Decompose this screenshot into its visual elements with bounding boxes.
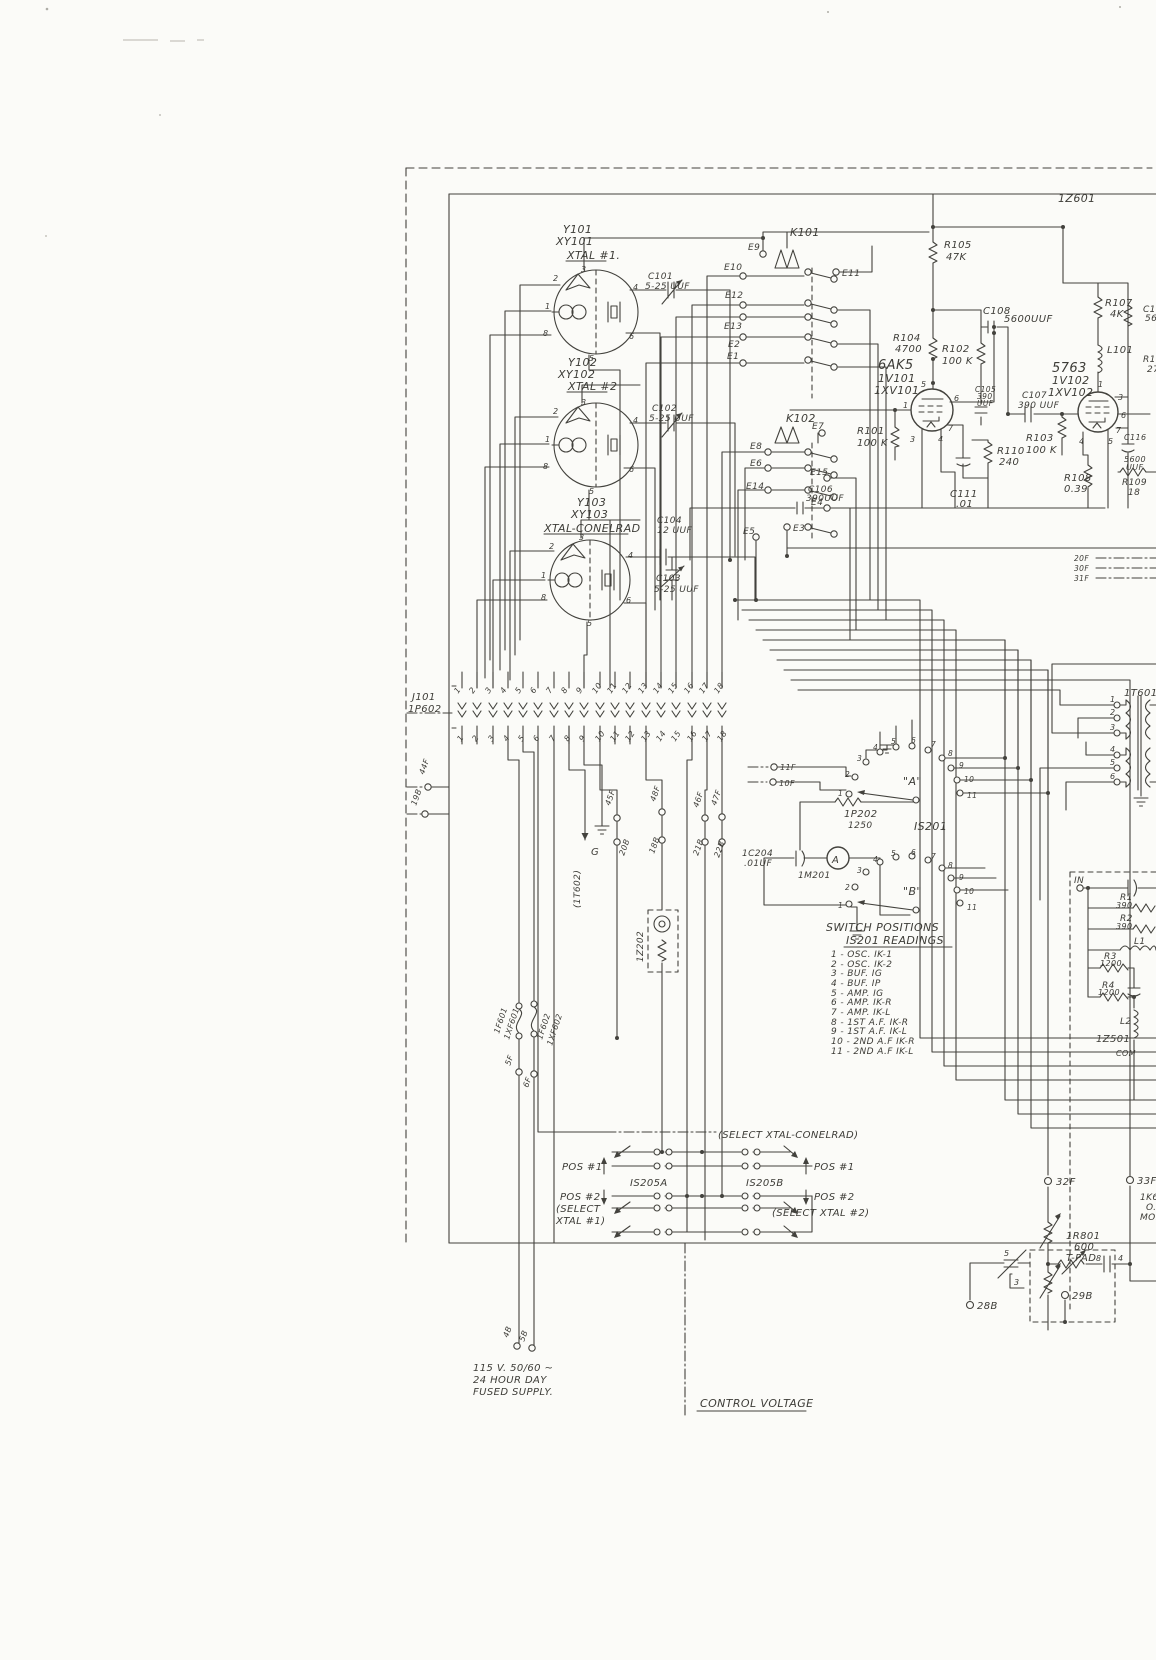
- label-c109-val: 560: [1145, 314, 1156, 324]
- readings-list-9: 9 - 1ST A.F. IK-L: [831, 1027, 907, 1037]
- tube-6ak5-pins-3: 6: [954, 394, 960, 403]
- label-e1: E1: [727, 352, 739, 362]
- label-5f: 5F: [503, 1054, 515, 1067]
- label-j101: J101: [410, 692, 436, 703]
- connector-pin-numbers-bottom-8: 8: [562, 733, 573, 743]
- crystal-y101-pins-7: 5: [589, 354, 595, 363]
- crystal-y102-pins-2: 3: [581, 398, 587, 407]
- label-c103-val: 5-25 UUF: [654, 585, 699, 595]
- crystal-y103-pins-4: 1: [541, 571, 547, 580]
- label-e14: E14: [746, 482, 764, 492]
- label-c104-ref: C104: [657, 516, 682, 526]
- crystal-y103-pins-3: 4: [628, 551, 634, 560]
- label-30f: 30F: [1074, 564, 1089, 573]
- label-pos1-l: POS #1: [562, 1162, 603, 1173]
- connector-pin-numbers-top-4: 4: [498, 685, 509, 695]
- connector-pin-numbers-bottom-14: 14: [654, 729, 668, 743]
- label-power-line1: 115 V. 50/60 ~: [473, 1363, 553, 1374]
- connector-pin-numbers-top-10: 10: [590, 681, 604, 695]
- connector-pin-numbers-bottom-16: 16: [685, 729, 699, 743]
- readings-list: 1 - OSC. IK-12 - OSC. IK-23 - BUF. IG4 -…: [831, 950, 915, 1057]
- label-1r801-val: 600: [1074, 1242, 1094, 1253]
- label-c101-val: 5-25 UUF: [645, 282, 690, 292]
- label-r103-ref: R103: [1026, 433, 1054, 444]
- tpad-pin-numbers-1: 5: [1004, 1249, 1010, 1258]
- readings-list-7: 7 - AMP. IK-L: [831, 1008, 891, 1018]
- crystal-y103-pins-6: 6: [626, 596, 632, 605]
- label-e7: E7: [812, 422, 824, 432]
- readings-list-10: 10 - 2ND A.F IK-R: [831, 1037, 915, 1047]
- label-e13: E13: [724, 322, 742, 332]
- label-r103-val: 100 K: [1026, 445, 1058, 456]
- tube-6ak5-pins-1: 5: [921, 380, 927, 389]
- label-mod-2: O.L.: [1146, 1203, 1156, 1213]
- switch-is201-a-symbol: [846, 743, 963, 803]
- tpad-pin-numbers-2: 3: [1014, 1278, 1020, 1287]
- crystal-y101-pins-1: 2: [553, 274, 559, 283]
- switch-is201-b-symbol: [846, 853, 963, 913]
- label-10f: 10F: [779, 779, 795, 788]
- crystal-y102-pins-1: 2: [553, 407, 559, 416]
- label-e3: E3: [793, 524, 805, 534]
- connector-pin-numbers-top-2: 2: [467, 685, 478, 695]
- label-pos2-l: POS #2: [560, 1192, 601, 1203]
- label-power-line2: 24 HOUR DAY: [473, 1375, 547, 1386]
- connector-pin-numbers-top-1: 1: [452, 685, 463, 695]
- label-1z601: 1Z601: [1058, 192, 1096, 205]
- label-1r801-ref: 1R801: [1066, 1231, 1100, 1242]
- connector-pin-numbers-bottom-2: 2: [470, 733, 481, 743]
- label-c104-val: 12 UUF: [657, 526, 692, 536]
- crystal-y102-pins: 2341865: [543, 398, 639, 496]
- connector-pin-numbers-bottom-11: 11: [608, 729, 622, 743]
- connector-pin-numbers-top-18: 18: [712, 681, 726, 695]
- crystal-y103-symbol: [548, 540, 630, 620]
- tube-6ak5-pins-5: 3: [910, 435, 916, 444]
- label-meter-glyph: A: [831, 855, 839, 866]
- label-11f: 11F: [780, 763, 796, 772]
- label-sel2: (SELECT XTAL #2): [772, 1208, 869, 1219]
- label-y103-name: XTAL-CONELRAD: [543, 522, 641, 535]
- label-1p202-ref: 1P202: [844, 809, 877, 820]
- label-c103-ref: C103: [656, 574, 681, 584]
- label-sel1a: (SELECT: [556, 1204, 601, 1215]
- tpad-pin-numbers-3: 8: [1096, 1254, 1102, 1263]
- connector-pin-numbers-top-12: 12: [620, 681, 634, 695]
- label-c105-v2: UUF: [977, 399, 994, 408]
- t601-pin-numbers-1: 1: [1110, 695, 1116, 704]
- label-e11: E11: [842, 269, 860, 279]
- label-in: IN: [1074, 876, 1084, 886]
- switch-b-position-numbers-8: 8: [948, 861, 953, 870]
- schematic-scan-page: Y101 XY101 XTAL #1. Y102 XY102 XTAL #2 Y…: [0, 0, 1156, 1660]
- connector-pin-numbers-top-5: 5: [513, 685, 524, 695]
- label-r109-val: 18: [1128, 488, 1140, 498]
- label-pos1-r: POS #1: [814, 1162, 855, 1173]
- label-c116-ref: C116: [1124, 433, 1146, 442]
- tube-5763-pins-1: 1: [1098, 380, 1104, 389]
- crystal-y101-pins-5: 8: [543, 329, 549, 338]
- crystal-y101-symbol: [552, 270, 638, 354]
- label-c101-ref: C101: [648, 272, 673, 282]
- label-mod-3: MOD: [1140, 1213, 1156, 1223]
- label-r4v: 1200: [1098, 988, 1120, 997]
- connector-pin-numbers-bottom-12: 12: [623, 729, 637, 743]
- label-v102-socket: 1XV102: [1048, 386, 1093, 399]
- label-r108-ref: R108: [1064, 473, 1092, 484]
- crystal-y102-symbol: [552, 403, 638, 487]
- tube-5763-pins-6: 4: [1079, 437, 1085, 446]
- switch-b-position-numbers-6: 6: [911, 848, 916, 857]
- tube-6ak5-pins-6: 4: [938, 435, 944, 444]
- resistor-1p202-zigzag: [835, 798, 861, 806]
- switch-a-position-numbers-8: 8: [948, 749, 953, 758]
- t601-pin-numbers-6: 6: [1110, 772, 1116, 781]
- label-c102-val: 5-25 UUF: [649, 414, 694, 424]
- label-48f: 48F: [648, 785, 662, 803]
- label-r3v: 1200: [1100, 959, 1122, 968]
- switch-a-position-numbers-9: 9: [959, 761, 964, 770]
- connector-pin-numbers-bottom-4: 4: [501, 733, 512, 743]
- connector-pin-numbers-bottom-10: 10: [593, 729, 607, 743]
- crystal-y101-pins-2: 3: [581, 265, 587, 274]
- label-31f: 31F: [1074, 574, 1089, 583]
- switch-a-position-numbers-10: 10: [964, 775, 974, 784]
- connector-pin-numbers-bottom-15: 15: [669, 729, 683, 743]
- label-c102-ref: C102: [652, 404, 677, 414]
- label-g: G: [591, 847, 599, 858]
- label-1c204-ref: 1C204: [742, 849, 773, 859]
- label-e10: E10: [724, 263, 742, 273]
- label-e8: E8: [750, 442, 762, 452]
- connector-pin-numbers-top-14: 14: [651, 681, 665, 695]
- label-l1-audio: L1: [1134, 937, 1146, 947]
- label-1c204-val: .01UF: [744, 859, 773, 869]
- readings-list-11: 11 - 2ND A.F IK-L: [831, 1047, 914, 1057]
- connector-pin-numbers-top-15: 15: [666, 681, 680, 695]
- label-c108-val: 5600UUF: [1004, 314, 1053, 325]
- label-e15: E15: [810, 468, 828, 478]
- crystal-y101-pins-6: 6: [629, 332, 635, 341]
- label-v101-socket: 1XV101: [874, 384, 919, 397]
- switch-b-position-numbers-1: 1: [838, 901, 843, 910]
- crystal-y102-pins-6: 6: [629, 465, 635, 474]
- label-c107-val: 390 UUF: [1018, 401, 1060, 411]
- label-r110-ref: R110: [997, 446, 1025, 457]
- relay-k101-symbol: [740, 250, 839, 370]
- label-46f: 46F: [691, 791, 705, 809]
- label-4b: 4B: [501, 1325, 513, 1339]
- readings-list-3: 3 - BUF. IG: [831, 969, 882, 979]
- crystal-y102-pins-5: 8: [543, 462, 549, 471]
- connector-pin-numbers-top-13: 13: [636, 681, 650, 695]
- crystal-y103-pins-2: 3: [579, 533, 585, 542]
- label-select-conelrad: (SELECT XTAL-CONELRAD): [718, 1130, 858, 1141]
- t601-pin-numbers-3: 3: [1110, 723, 1116, 732]
- label-com: COM: [1116, 1049, 1136, 1058]
- label-r107-val: 4K: [1110, 309, 1125, 320]
- connector-pin-numbers-bottom-1: 1: [455, 733, 466, 743]
- label-r104-val: 4700: [895, 344, 922, 355]
- label-r107-ref: R107: [1105, 298, 1133, 309]
- switch-b-position-numbers-4: 4: [873, 855, 878, 864]
- label-k101: K101: [790, 226, 820, 239]
- connector-pin-numbers-bottom-6: 6: [531, 733, 542, 743]
- tube-6ak5-pins-2: 1: [903, 401, 909, 410]
- label-1r801-name: T-PAD: [1066, 1253, 1096, 1264]
- label-r2v: 390: [1116, 922, 1132, 931]
- t601-pin-numbers-2: 2: [1110, 708, 1116, 717]
- label-is205b: IS205B: [746, 1178, 784, 1189]
- label-is201: IS201: [914, 820, 947, 833]
- t601-pin-numbers-5: 5: [1110, 758, 1116, 767]
- label-1t602: (1T602): [573, 870, 583, 908]
- readings-list-1: 1 - OSC. IK-1: [831, 950, 892, 960]
- label-e9: E9: [748, 243, 760, 253]
- connector-pin-numbers-bottom-18: 18: [715, 729, 729, 743]
- label-y103-ref2: XY103: [570, 508, 608, 521]
- label-19b: 19B: [409, 788, 423, 807]
- connector-pin-numbers-bottom: 123456789101112131415161718: [455, 729, 729, 744]
- label-28b: 28B: [977, 1301, 998, 1312]
- crystal-y103-pins-5: 8: [541, 593, 547, 602]
- label-e6: E6: [750, 459, 762, 469]
- connector-pin-numbers-bottom-9: 9: [577, 733, 588, 743]
- label-22b: 22B: [712, 840, 726, 859]
- label-r101-val: 100 K: [857, 438, 889, 449]
- label-18b: 18B: [647, 836, 661, 855]
- label-y101-name: XTAL #1.: [566, 249, 620, 262]
- label-c111-val: .01: [956, 499, 973, 510]
- crystal-y101-pins-3: 4: [633, 283, 639, 292]
- tube-5763-pins-2: 3: [1118, 393, 1124, 402]
- fuse-symbols: [516, 1001, 537, 1039]
- schematic-canvas: Y101 XY101 XTAL #1. Y102 XY102 XTAL #2 Y…: [0, 0, 1156, 1660]
- connector-pin-numbers-top-16: 16: [682, 681, 696, 695]
- switch-b-position-numbers-3: 3: [857, 866, 862, 875]
- label-e2: E2: [728, 340, 740, 350]
- tube-5763-pins-3: 6: [1121, 411, 1127, 420]
- label-29b: 29B: [1072, 1291, 1093, 1302]
- label-1p602: 1P602: [408, 704, 441, 715]
- crystal-y103-pins-1: 2: [549, 542, 555, 551]
- wire-network: [407, 194, 1156, 1415]
- connector-pin-numbers-top-17: 17: [697, 681, 711, 696]
- tube-5763-pins-5: 5: [1108, 437, 1114, 446]
- connector-pin-numbers-bottom-7: 7: [547, 733, 558, 743]
- switch-a-position-numbers-3: 3: [857, 754, 862, 763]
- crystal-y103-pins-7: 5: [587, 619, 593, 628]
- label-e5: E5: [743, 527, 755, 537]
- connector-pin-numbers-top-6: 6: [528, 685, 539, 695]
- tpad-pin-numbers-4: 4: [1118, 1254, 1124, 1263]
- connector-pin-numbers-bottom-13: 13: [639, 729, 653, 743]
- label-32f: 32F: [1056, 1177, 1076, 1188]
- switch-a-position-numbers-2: 2: [845, 770, 850, 779]
- tube-6ak5-pins-4: 7: [948, 424, 954, 433]
- lamp-resistor-zigzag: [658, 940, 666, 961]
- label-1z202: 1Z202: [636, 931, 646, 962]
- label-1z501: 1Z501: [1096, 1034, 1130, 1045]
- connector-pin-numbers-top-9: 9: [574, 685, 585, 695]
- label-pos2-r: POS #2: [814, 1192, 855, 1203]
- label-r109-ref: R109: [1122, 478, 1147, 488]
- label-control-voltage: CONTROL VOLTAGE: [700, 1397, 814, 1410]
- wire-tag-leaders: [1096, 558, 1156, 578]
- label-r102-ref: R102: [942, 344, 970, 355]
- connector-pin-numbers-bottom-17: 17: [700, 729, 714, 744]
- connector-pin-numbers-bottom-3: 3: [486, 733, 497, 743]
- switch-a-position-numbers-1: 1: [838, 789, 843, 798]
- label-1p202-val: 1250: [848, 821, 873, 831]
- label-r106-ref: R106: [1143, 355, 1156, 365]
- crystal-y101-pins-4: 1: [545, 302, 551, 311]
- label-r108-val: 0.39: [1064, 484, 1088, 495]
- readings-list-6: 6 - AMP. IK-R: [831, 998, 892, 1008]
- inductor-l101-symbol: [1098, 345, 1102, 373]
- switch-b-position-numbers-2: 2: [845, 883, 850, 892]
- label-e12: E12: [725, 291, 743, 301]
- label-1t601: 1T601: [1124, 688, 1156, 699]
- connector-pin-numbers-top-3: 3: [483, 685, 494, 695]
- label-c107-ref: C107: [1022, 391, 1047, 401]
- label-mod-1: 1K601: [1140, 1193, 1156, 1203]
- label-readings-title2: IS201 READINGS: [846, 934, 944, 947]
- label-y102-name: XTAL #2: [567, 380, 617, 393]
- label-21b: 21B: [691, 838, 705, 857]
- label-power-line3: FUSED SUPPLY.: [473, 1387, 553, 1398]
- readings-list-4: 4 - BUF. IP: [831, 979, 881, 989]
- label-is205a: IS205A: [630, 1178, 668, 1189]
- switch-b-position-numbers-5: 5: [891, 849, 896, 858]
- label-l2-audio: L2: [1120, 1017, 1132, 1027]
- connector-pin-numbers-top-11: 11: [605, 681, 619, 695]
- switch-a-position-numbers-7: 7: [931, 740, 936, 749]
- capacitor-c106-symbol: [797, 502, 803, 514]
- switch-a-position-numbers-5: 5: [891, 737, 896, 746]
- switch-b-position-numbers-10: 10: [964, 887, 974, 896]
- label-v101-type: 6AK5: [878, 358, 914, 373]
- label-sel1b: XTAL #1): [555, 1216, 605, 1227]
- capacitor-1c204-symbol: [796, 851, 805, 866]
- crystal-y102-pins-4: 1: [545, 435, 551, 444]
- label-c106-val: 390UUF: [806, 494, 844, 504]
- scan-artifacts: [45, 6, 1121, 237]
- label-r110-val: 240: [999, 457, 1019, 468]
- switch-b-position-numbers-11: 11: [967, 903, 977, 912]
- crystal-y101-pins: 2341865: [543, 265, 639, 363]
- label-45f: 45F: [603, 789, 617, 807]
- label-r102-val: 100 K: [942, 356, 974, 367]
- tpad-1r801-symbol: [998, 1213, 1115, 1322]
- label-r104-ref: R104: [893, 333, 921, 344]
- connector-pin-numbers-top-8: 8: [559, 685, 570, 695]
- transformer-1t601-symbol: [1114, 696, 1150, 790]
- label-r101-ref: R101: [857, 426, 885, 437]
- switch-b-position-numbers-7: 7: [931, 852, 936, 861]
- label-1m201: 1M201: [798, 871, 831, 881]
- label-c116-v2: UUF: [1126, 463, 1144, 472]
- label-sec-a: "A": [903, 775, 922, 788]
- label-r106-val: 27: [1147, 365, 1156, 375]
- label-20f: 20F: [1074, 554, 1089, 563]
- label-47f: 47F: [709, 789, 723, 807]
- switch-a-position-numbers-11: 11: [967, 791, 977, 800]
- label-44f: 44F: [417, 758, 431, 776]
- crystal-y102-pins-3: 4: [633, 416, 639, 425]
- crystal-y102-pins-7: 5: [589, 487, 595, 496]
- switch-a-position-numbers-6: 6: [911, 736, 916, 745]
- switch-a-position-numbers-4: 4: [873, 743, 878, 752]
- t601-pin-numbers-4: 4: [1110, 745, 1116, 754]
- label-r1v: 390: [1116, 901, 1132, 910]
- label-r105-val: 47K: [946, 252, 968, 263]
- label-6f: 6F: [521, 1076, 533, 1089]
- label-y101-ref2: XY101: [555, 235, 593, 248]
- switch-b-position-numbers-9: 9: [959, 873, 964, 882]
- label-sec-b: "B": [903, 885, 922, 898]
- tube-5763-pins-4: 7: [1116, 426, 1122, 435]
- label-l101: L101: [1107, 345, 1133, 356]
- label-r105-ref: R105: [944, 240, 972, 251]
- connector-pin-numbers-bottom-5: 5: [516, 733, 527, 743]
- label-33f: 33F: [1137, 1176, 1156, 1187]
- label-readings-title1: SWITCH POSITIONS: [826, 921, 939, 934]
